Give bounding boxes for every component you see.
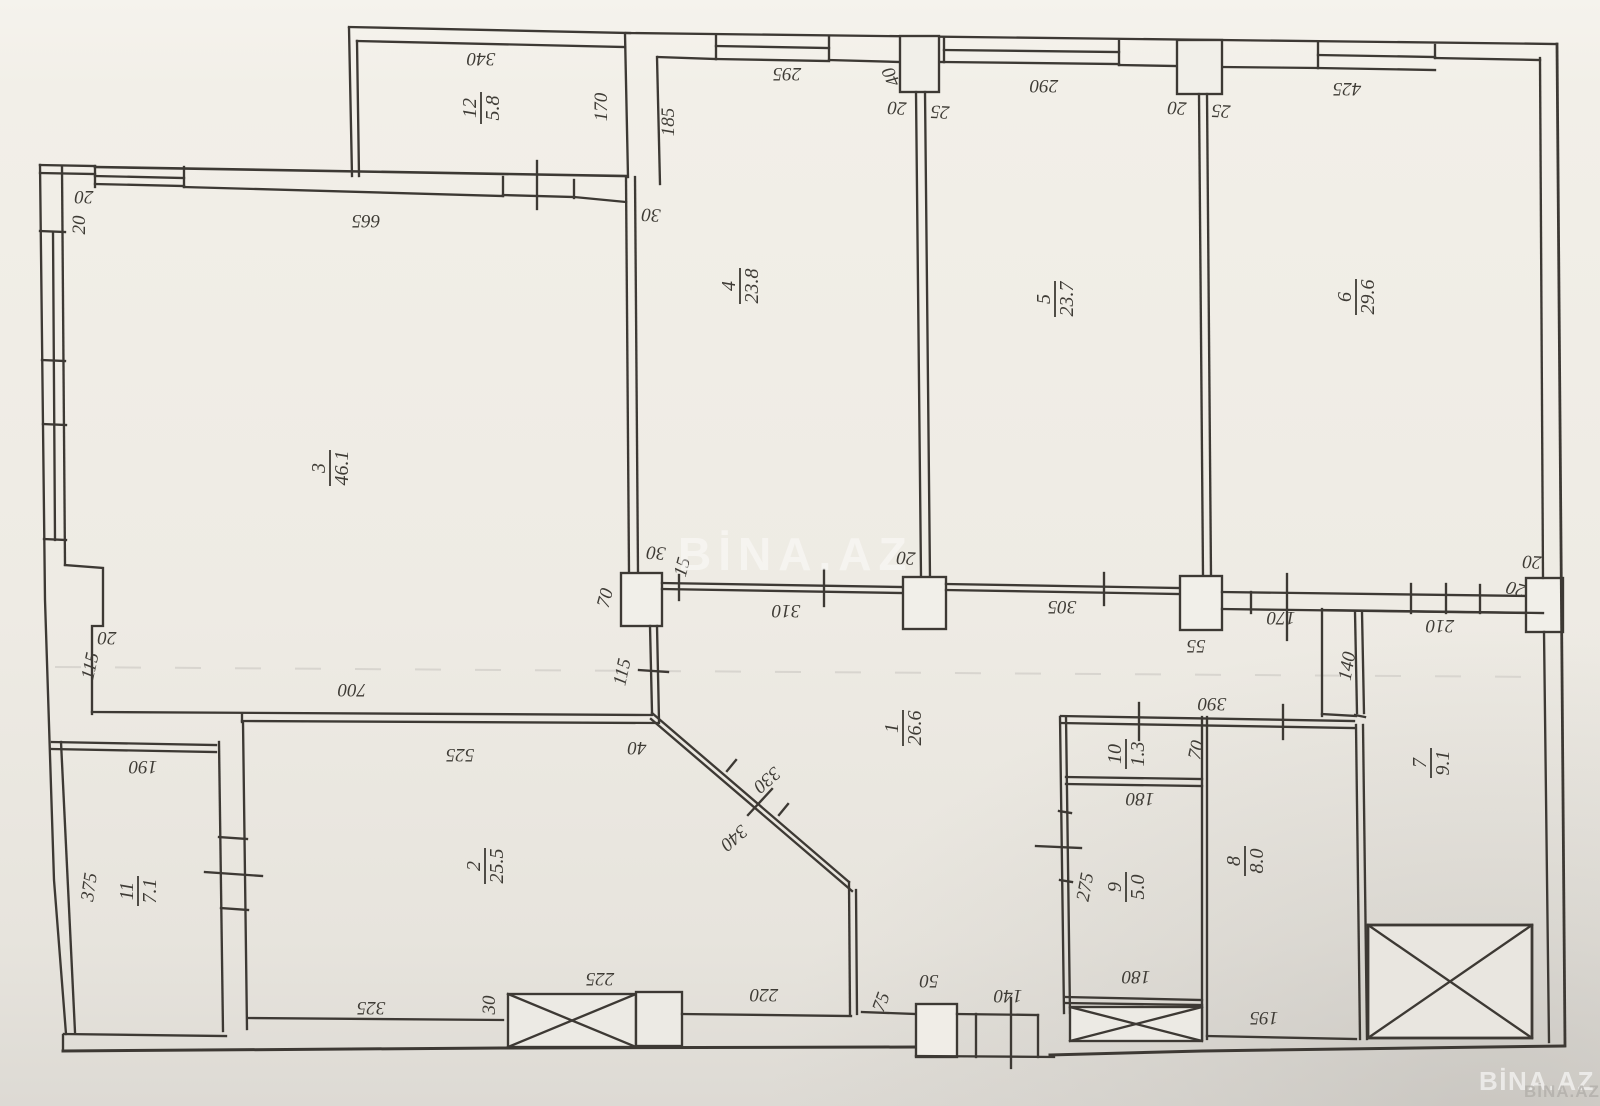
svg-text:12: 12 [459, 98, 481, 118]
svg-text:9.1: 9.1 [1432, 751, 1454, 776]
svg-text:665: 665 [352, 210, 381, 231]
svg-text:30: 30 [645, 541, 667, 563]
svg-text:50: 50 [919, 970, 939, 991]
svg-text:20: 20 [886, 96, 907, 118]
svg-text:185: 185 [658, 108, 679, 137]
svg-text:340: 340 [466, 48, 496, 69]
svg-text:700: 700 [337, 679, 366, 700]
svg-text:7.1: 7.1 [139, 879, 161, 904]
svg-text:20: 20 [74, 186, 94, 207]
svg-text:290: 290 [1029, 75, 1058, 96]
svg-text:5: 5 [1033, 294, 1055, 304]
svg-text:220: 220 [749, 984, 778, 1005]
svg-text:375: 375 [77, 871, 102, 903]
svg-text:5.0: 5.0 [1127, 875, 1149, 900]
svg-text:20: 20 [97, 627, 117, 648]
svg-text:2: 2 [463, 861, 485, 871]
svg-text:7: 7 [1409, 757, 1431, 768]
svg-text:20: 20 [1166, 96, 1187, 118]
svg-text:20: 20 [69, 215, 90, 235]
svg-text:4: 4 [718, 281, 740, 291]
svg-text:325: 325 [357, 997, 387, 1018]
svg-text:170: 170 [1266, 607, 1295, 628]
svg-text:1.3: 1.3 [1127, 742, 1149, 767]
svg-text:8: 8 [1223, 856, 1245, 866]
svg-text:9: 9 [1104, 882, 1126, 892]
svg-text:210: 210 [1425, 615, 1454, 636]
svg-text:30: 30 [479, 995, 500, 1016]
svg-text:55: 55 [1187, 635, 1206, 656]
svg-text:BİNA.AZ: BİNA.AZ [1524, 1082, 1600, 1101]
svg-text:140: 140 [993, 985, 1022, 1006]
svg-text:180: 180 [1125, 788, 1154, 809]
svg-text:26.6: 26.6 [904, 711, 926, 746]
svg-text:190: 190 [128, 756, 157, 777]
svg-text:295: 295 [773, 63, 802, 84]
svg-text:30: 30 [640, 203, 662, 225]
svg-text:23.7: 23.7 [1056, 281, 1078, 317]
svg-text:170: 170 [591, 92, 612, 121]
svg-text:40: 40 [627, 737, 647, 758]
svg-text:5.8: 5.8 [482, 96, 504, 121]
svg-text:10: 10 [1104, 744, 1126, 764]
svg-text:3: 3 [308, 463, 330, 474]
svg-text:305: 305 [1048, 596, 1078, 617]
svg-text:23.8: 23.8 [741, 269, 763, 304]
svg-text:29.6: 29.6 [1357, 280, 1379, 315]
svg-text:225: 225 [586, 968, 615, 989]
svg-text:BİNA.AZ: BİNA.AZ [678, 528, 914, 580]
svg-text:525: 525 [446, 744, 475, 765]
svg-text:8.0: 8.0 [1246, 849, 1268, 874]
svg-text:310: 310 [771, 600, 801, 621]
svg-text:25: 25 [1211, 100, 1231, 122]
svg-text:11: 11 [116, 882, 138, 901]
svg-text:1: 1 [881, 723, 903, 733]
svg-text:180: 180 [1121, 966, 1150, 987]
svg-text:425: 425 [1333, 78, 1362, 99]
svg-text:25: 25 [930, 101, 950, 123]
svg-text:390: 390 [1197, 693, 1227, 714]
svg-text:6: 6 [1334, 292, 1356, 302]
svg-text:20: 20 [1521, 550, 1542, 572]
svg-text:25.5: 25.5 [486, 849, 508, 884]
svg-text:195: 195 [1250, 1007, 1279, 1028]
svg-text:46.1: 46.1 [331, 451, 353, 486]
